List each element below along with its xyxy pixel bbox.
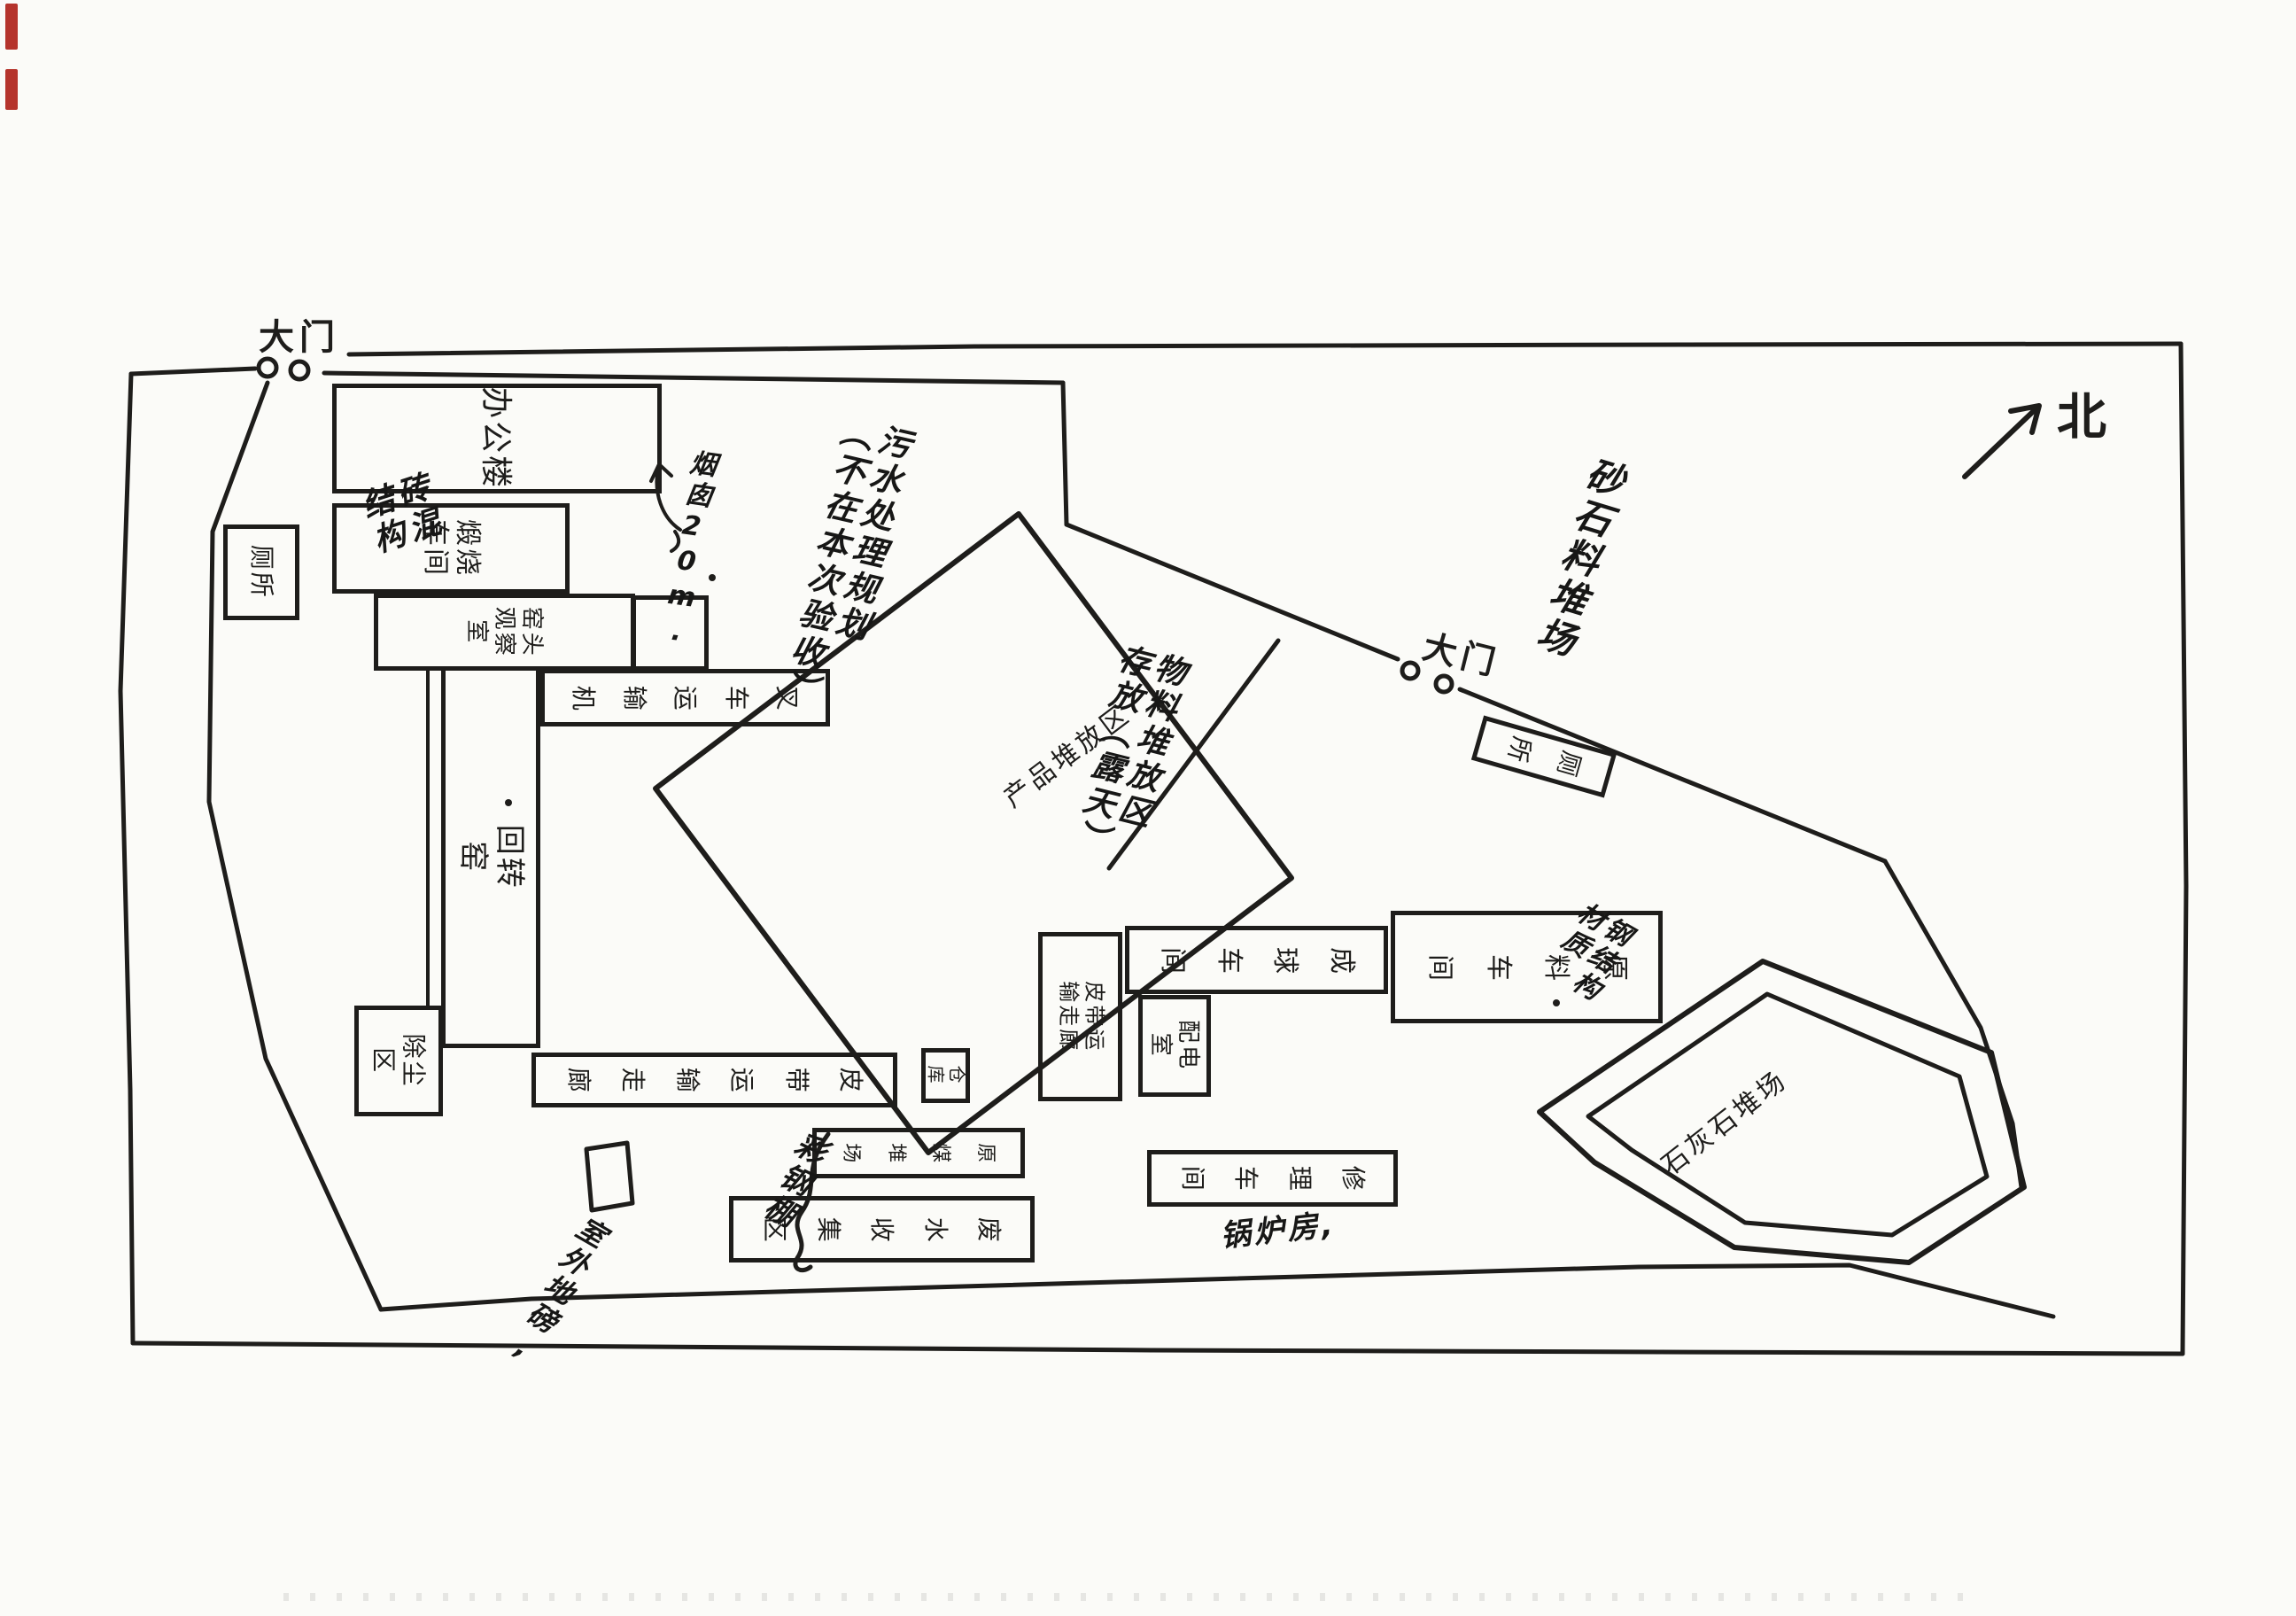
pelletizing-workshop-label: 间车球成 bbox=[1129, 944, 1384, 976]
office-building: 办公楼 bbox=[332, 384, 662, 493]
wall-right bbox=[2181, 344, 2186, 1354]
red-margin-mark bbox=[5, 4, 18, 50]
scan-artifact-row bbox=[283, 1593, 1966, 1601]
rotary-kiln: 回转窑 bbox=[441, 666, 540, 1048]
gate-east-post-1 bbox=[1402, 663, 1418, 679]
belt-conveyor-corridor-east-label: 皮带运输走廊 bbox=[1055, 979, 1106, 1054]
toilet-west: 厕所 bbox=[223, 524, 299, 620]
ink-dot bbox=[709, 574, 716, 581]
rotary-kiln-label: 回转窑 bbox=[454, 812, 527, 903]
gate-north-post-2 bbox=[291, 361, 308, 379]
raw-coal-yard-label: 场堆煤原 bbox=[817, 1141, 1020, 1164]
wall-left bbox=[120, 374, 133, 1343]
fence-ne-2 bbox=[1460, 689, 1885, 861]
office-building-label: 办公楼 bbox=[477, 386, 516, 490]
limestone-inner bbox=[1588, 994, 1987, 1235]
belt-conveyor-corridor-south: 廊走输运带皮 bbox=[531, 1053, 897, 1107]
wall-bottom bbox=[133, 1343, 2183, 1354]
wall-top-left-stub bbox=[131, 369, 255, 374]
repair-workshop: 间车理修 bbox=[1147, 1150, 1398, 1207]
site-plan-sketch: 办公楼煅烧 车间窑头 观察 室厕所回转窑机输运车叉廊走输运带皮仓库皮带运输走廊配… bbox=[0, 0, 2296, 1616]
kiln-head-observation-room: 窑头 观察 室 bbox=[374, 594, 635, 671]
gate-north-label: 大门 bbox=[259, 308, 340, 360]
fence-jog bbox=[1063, 383, 1067, 524]
warehouse-small-label: 仓库 bbox=[925, 1056, 967, 1096]
north-label: 北 bbox=[2057, 377, 2106, 449]
gate-east-post-2 bbox=[1436, 676, 1452, 692]
fence-bottom-inner bbox=[381, 1265, 2053, 1317]
warehouse-small: 仓库 bbox=[921, 1048, 970, 1103]
gate-north-post-1 bbox=[259, 359, 276, 377]
red-margin-mark bbox=[5, 69, 18, 110]
repair-workshop-label: 间车理修 bbox=[1152, 1163, 1393, 1193]
dust-collection-area-label: 除尘区 bbox=[368, 1022, 428, 1101]
wall-top-inner bbox=[324, 373, 1063, 383]
belt-conveyor-corridor-south-label: 廊走输运带皮 bbox=[536, 1065, 893, 1095]
weighbridge-square bbox=[586, 1143, 632, 1210]
north-arrow-icon bbox=[1965, 406, 2039, 477]
toilet-west-label: 厕所 bbox=[246, 545, 276, 600]
pelletizing-workshop: 间车球成 bbox=[1125, 926, 1388, 994]
raw-coal-yard: 场堆煤原 bbox=[812, 1128, 1025, 1178]
power-distribution-room: 配电室 bbox=[1138, 995, 1211, 1097]
power-distribution-room-label: 配电室 bbox=[1147, 1014, 1202, 1078]
kiln-head-observation-room-label: 窑头 观察 室 bbox=[463, 606, 547, 657]
wall-top-outer bbox=[349, 344, 2181, 354]
dust-collection-area: 除尘区 bbox=[354, 1006, 443, 1116]
raw-material-workshop-label: 间车料原 bbox=[1395, 952, 1658, 983]
fence-ne-3 bbox=[1885, 861, 2021, 1187]
belt-conveyor-corridor-east: 皮带运输走廊 bbox=[1038, 932, 1122, 1101]
fence-ne-1 bbox=[1067, 524, 1398, 659]
